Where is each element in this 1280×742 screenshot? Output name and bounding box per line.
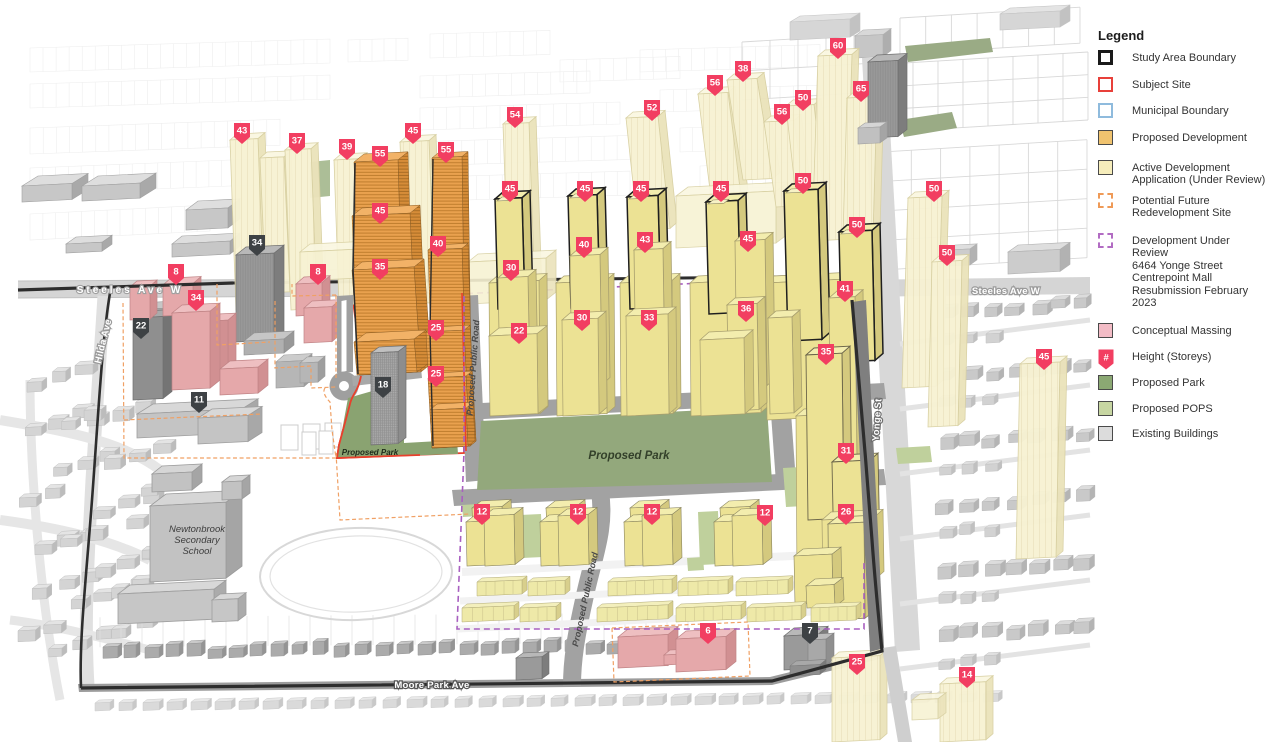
- svg-text:45: 45: [1039, 352, 1050, 363]
- svg-text:8: 8: [173, 267, 178, 278]
- svg-text:26: 26: [841, 507, 852, 518]
- svg-text:41: 41: [840, 284, 851, 295]
- svg-text:25: 25: [431, 369, 442, 380]
- svg-text:38: 38: [738, 64, 749, 75]
- svg-text:55: 55: [441, 145, 452, 156]
- svg-text:31: 31: [841, 446, 852, 457]
- svg-text:50: 50: [929, 184, 940, 195]
- svg-text:#: #: [1103, 353, 1109, 364]
- svg-text:Steeles Ave W: Steeles Ave W: [77, 285, 184, 296]
- svg-text:45: 45: [716, 184, 727, 195]
- svg-text:8: 8: [315, 267, 320, 278]
- svg-text:50: 50: [798, 176, 809, 187]
- svg-text:18: 18: [378, 380, 389, 391]
- svg-text:Secondary: Secondary: [174, 535, 221, 546]
- svg-text:43: 43: [237, 126, 248, 137]
- svg-text:22: 22: [136, 321, 147, 332]
- svg-text:45: 45: [743, 234, 754, 245]
- svg-text:43: 43: [640, 235, 651, 246]
- svg-text:25: 25: [431, 323, 442, 334]
- svg-text:45: 45: [580, 184, 591, 195]
- svg-text:45: 45: [375, 206, 386, 217]
- svg-text:35: 35: [821, 347, 832, 358]
- svg-text:Proposed Park: Proposed Park: [588, 450, 670, 462]
- svg-text:12: 12: [760, 508, 771, 519]
- svg-text:40: 40: [433, 239, 444, 250]
- svg-text:6: 6: [705, 626, 710, 637]
- svg-text:34: 34: [252, 238, 263, 249]
- svg-text:30: 30: [577, 313, 588, 324]
- svg-text:14: 14: [962, 670, 973, 681]
- svg-text:45: 45: [408, 126, 419, 137]
- svg-text:34: 34: [191, 293, 202, 304]
- svg-text:45: 45: [505, 184, 516, 195]
- svg-text:Newtonbrook: Newtonbrook: [169, 524, 226, 535]
- svg-text:50: 50: [798, 93, 809, 104]
- svg-text:30: 30: [506, 263, 517, 274]
- svg-text:56: 56: [777, 107, 788, 118]
- svg-text:12: 12: [647, 507, 658, 518]
- svg-text:50: 50: [852, 220, 863, 231]
- svg-text:52: 52: [647, 103, 658, 114]
- svg-text:33: 33: [644, 313, 655, 324]
- svg-text:60: 60: [833, 41, 844, 52]
- svg-text:11: 11: [194, 395, 205, 406]
- svg-text:54: 54: [510, 110, 521, 121]
- svg-text:School: School: [182, 546, 212, 557]
- svg-text:56: 56: [710, 78, 721, 89]
- svg-text:22: 22: [514, 326, 525, 337]
- svg-text:Yonge St: Yonge St: [871, 398, 885, 442]
- svg-text:35: 35: [375, 262, 386, 273]
- svg-text:37: 37: [292, 136, 303, 147]
- svg-text:50: 50: [942, 248, 953, 259]
- svg-text:Proposed Park: Proposed Park: [342, 448, 399, 457]
- svg-text:55: 55: [375, 149, 386, 160]
- svg-text:40: 40: [579, 240, 590, 251]
- svg-text:Steeles Ave W: Steeles Ave W: [972, 286, 1040, 297]
- svg-text:25: 25: [852, 657, 863, 668]
- svg-text:45: 45: [636, 184, 647, 195]
- svg-text:Moore Park Ave: Moore Park Ave: [394, 680, 469, 691]
- svg-text:12: 12: [573, 507, 584, 518]
- svg-text:36: 36: [741, 304, 752, 315]
- svg-text:12: 12: [477, 507, 488, 518]
- svg-text:39: 39: [342, 142, 353, 153]
- svg-text:7: 7: [807, 626, 812, 637]
- svg-text:65: 65: [856, 84, 867, 95]
